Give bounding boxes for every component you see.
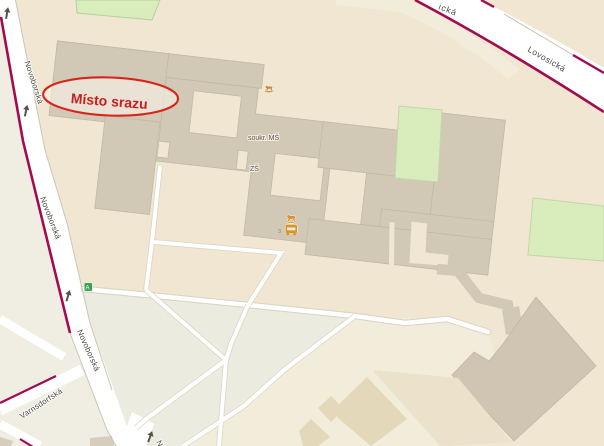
svg-text:soukr. MŠ: soukr. MŠ <box>248 133 279 142</box>
svg-text:3: 3 <box>278 229 281 235</box>
svg-text:ZŠ: ZŠ <box>250 164 259 173</box>
svg-text:A: A <box>86 285 90 291</box>
